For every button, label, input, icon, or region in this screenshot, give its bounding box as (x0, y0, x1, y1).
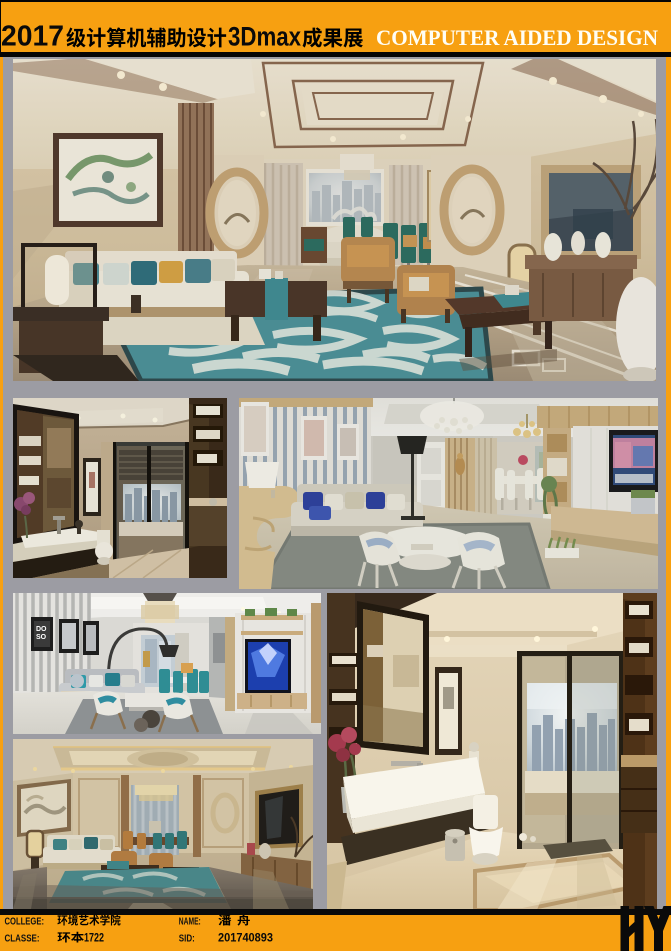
svg-text:COMPUTER AIDED DESIGN: COMPUTER AIDED DESIGN (376, 25, 658, 50)
svg-text:DO: DO (36, 626, 47, 633)
svg-text:SID:: SID: (179, 934, 195, 945)
svg-text:2017: 2017 (1, 21, 64, 53)
svg-text:1722: 1722 (84, 933, 104, 945)
svg-text:SO: SO (36, 634, 47, 641)
svg-text:COLLEGE:: COLLEGE: (5, 917, 45, 928)
svg-text:CLASSE:: CLASSE: (5, 934, 40, 945)
svg-text:201740893: 201740893 (218, 933, 273, 945)
svg-text:3Dmax: 3Dmax (228, 22, 301, 52)
svg-text:NAME:: NAME: (179, 917, 201, 928)
